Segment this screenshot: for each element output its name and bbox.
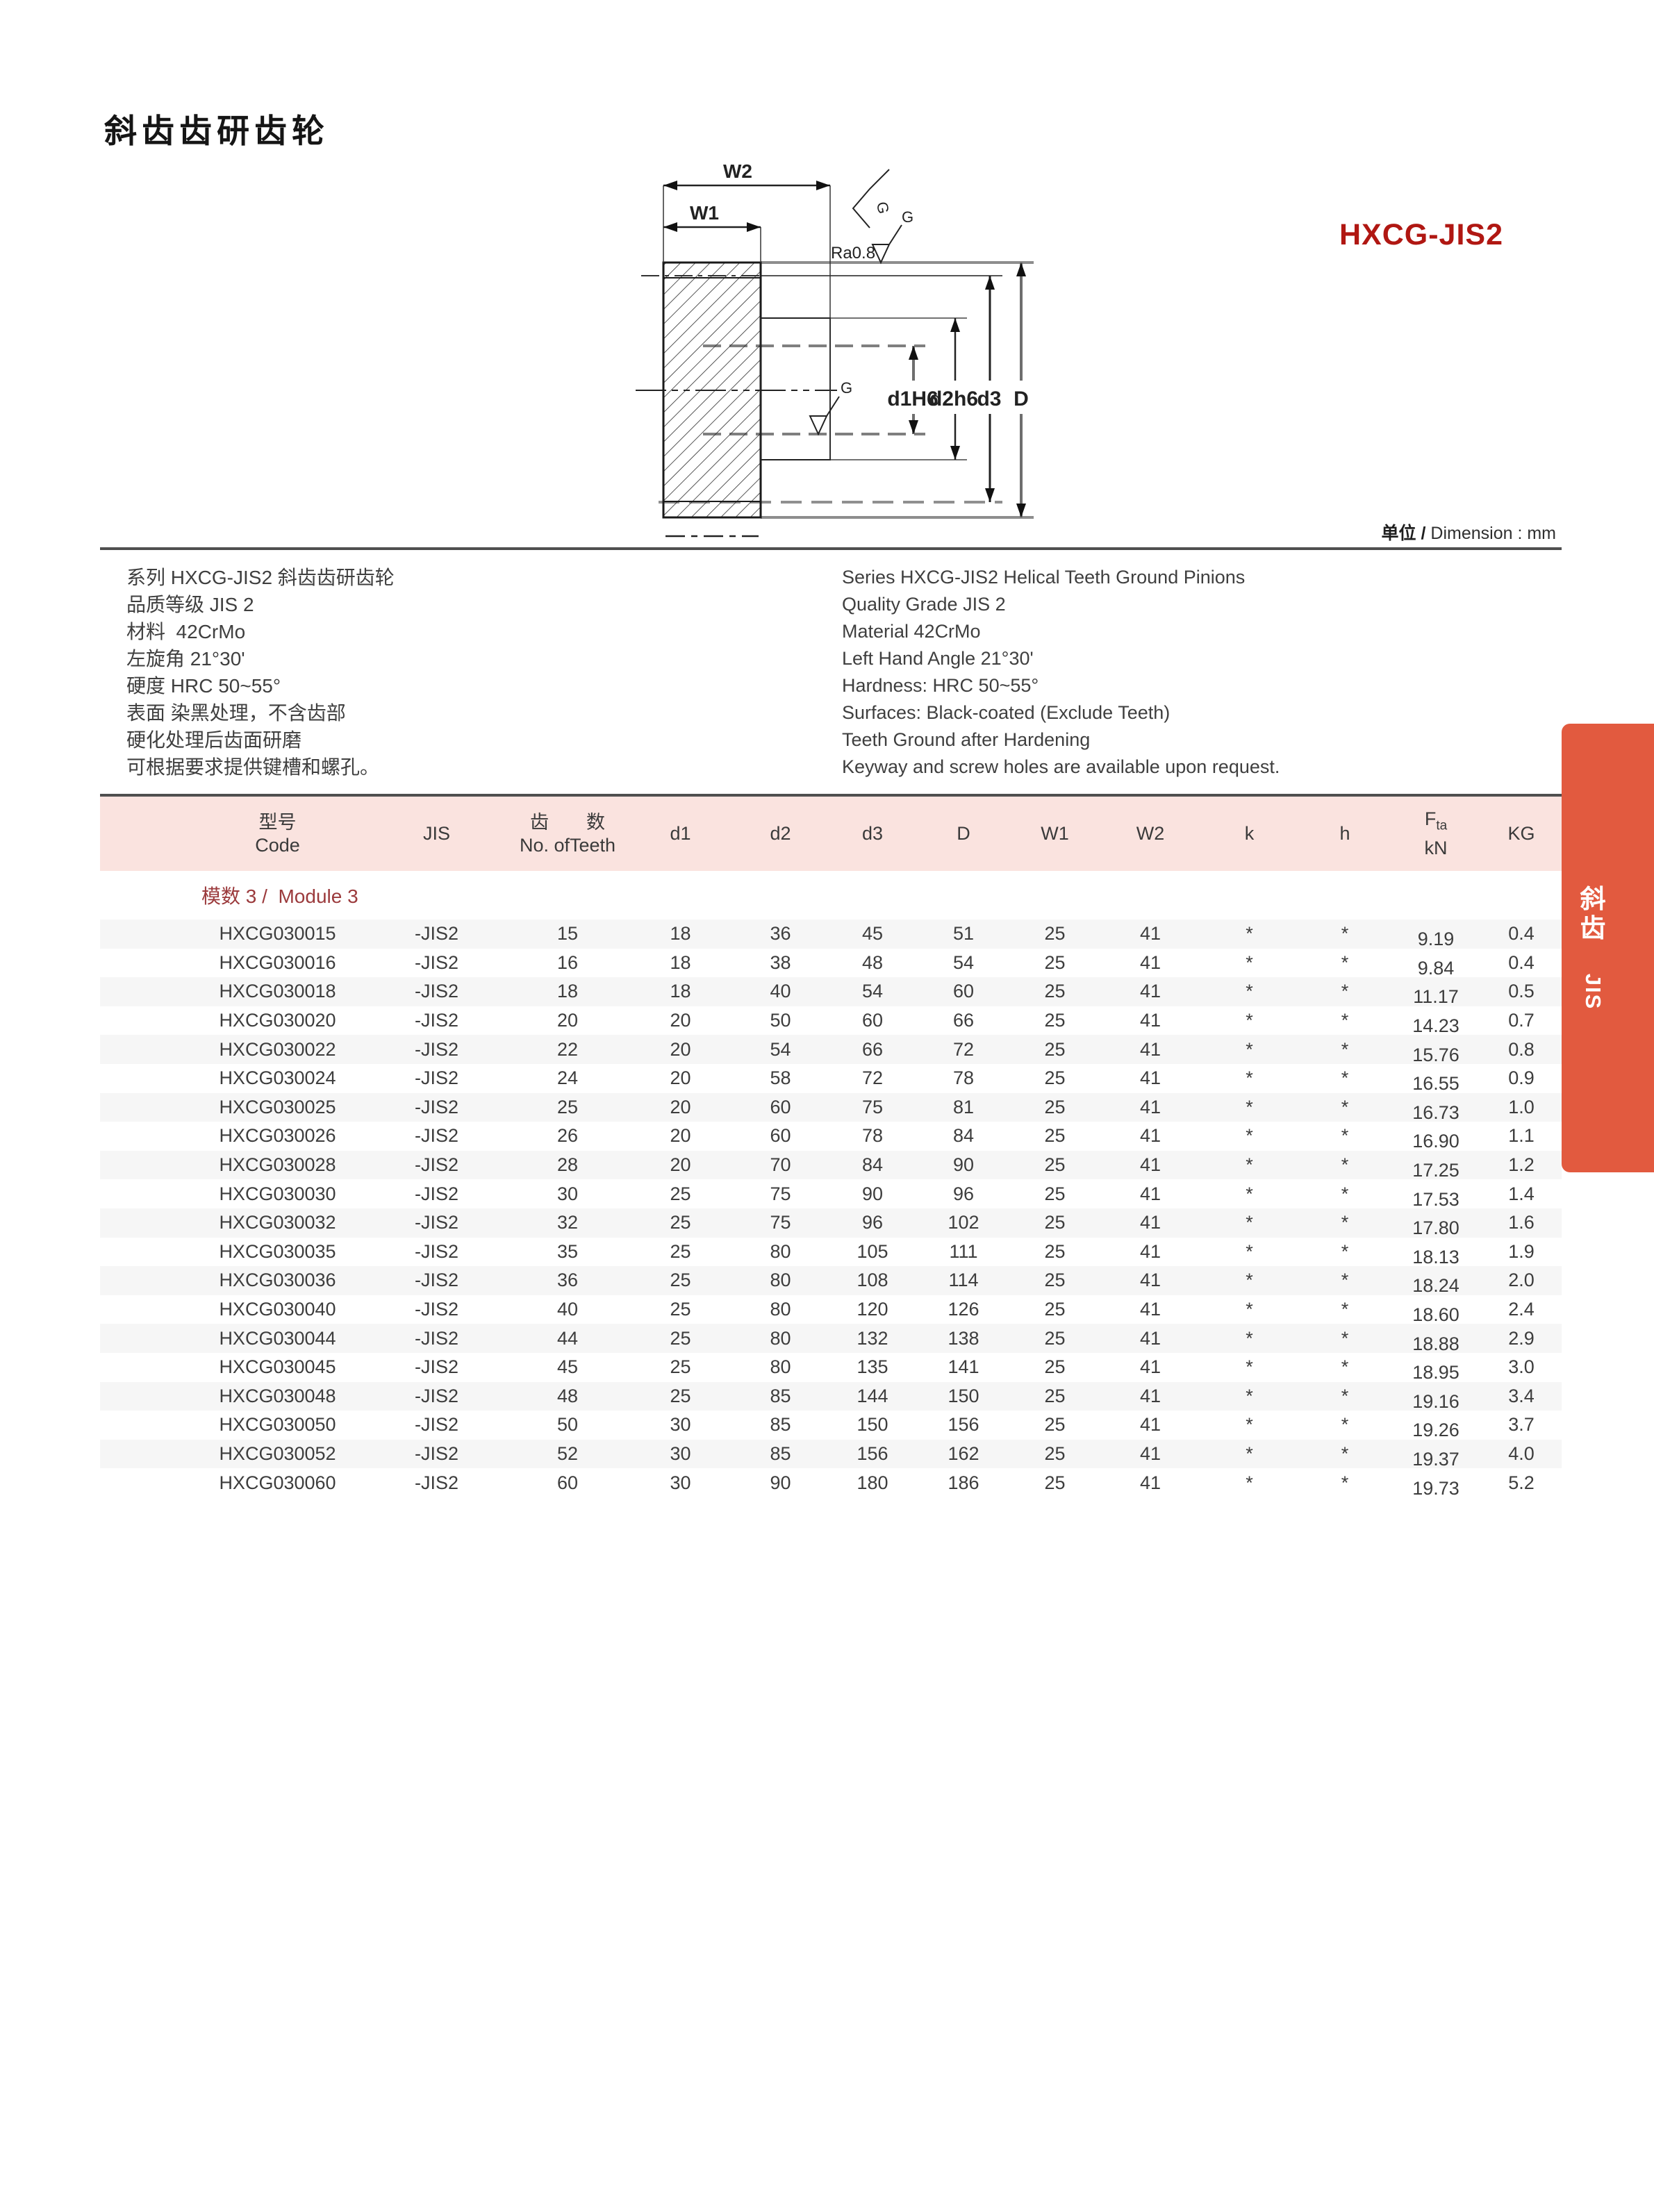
- cell-teeth: 20: [508, 1010, 627, 1031]
- cell-h: *: [1299, 1039, 1391, 1061]
- cell-code: HXCG030045: [100, 1356, 365, 1378]
- cell-w2: 41: [1101, 1299, 1200, 1320]
- cell-w2: 41: [1101, 1386, 1200, 1407]
- cell-d1: 25: [627, 1299, 734, 1320]
- cell-k: *: [1200, 1067, 1299, 1089]
- specs-chinese: 系列 HXCG-JIS2 斜齿齿研齿轮 品质等级 JIS 2 材料 42CrMo…: [126, 564, 395, 781]
- cell-d1: 18: [627, 952, 734, 974]
- cell-w1: 25: [1009, 952, 1101, 974]
- col-header-d3: d3: [827, 822, 918, 845]
- cell-k: *: [1200, 1299, 1299, 1320]
- cell-D: 84: [918, 1125, 1009, 1147]
- cell-h: *: [1299, 1472, 1391, 1494]
- cell-d2: 50: [734, 1010, 827, 1031]
- col-header-d1-label: d1: [627, 822, 734, 845]
- col-header-h-label: h: [1299, 822, 1391, 845]
- cell-teeth: 40: [508, 1299, 627, 1320]
- cell-w1: 25: [1009, 1067, 1101, 1089]
- cell-d1: 25: [627, 1386, 734, 1407]
- cell-code: HXCG030028: [100, 1154, 365, 1176]
- cell-kg: 1.2: [1481, 1154, 1562, 1176]
- cell-fta: 17.80: [1391, 1217, 1481, 1239]
- cell-w1: 25: [1009, 1270, 1101, 1291]
- col-header-kg: KG: [1481, 822, 1562, 845]
- spec-line: Surfaces: Black-coated (Exclude Teeth): [842, 699, 1280, 726]
- table-row: HXCG030044-JIS24425801321382541**18.882.…: [100, 1324, 1562, 1353]
- cell-fta: 16.73: [1391, 1102, 1481, 1124]
- cell-D: 78: [918, 1067, 1009, 1089]
- cell-teeth: 25: [508, 1097, 627, 1118]
- cell-d2: 90: [734, 1472, 827, 1494]
- page-title: 斜齿齿研齿轮: [104, 104, 329, 152]
- spec-line: Left Hand Angle 21°30': [842, 645, 1280, 672]
- cell-fta: 19.37: [1391, 1449, 1481, 1470]
- unit-note-zh: 单位 /: [1382, 524, 1426, 543]
- cell-w2: 41: [1101, 1414, 1200, 1436]
- cell-jis: -JIS2: [365, 1039, 508, 1061]
- cell-h: *: [1299, 1328, 1391, 1349]
- side-tab-char: 齿: [1562, 914, 1624, 943]
- cell-fta: 11.17: [1391, 986, 1481, 1008]
- cell-k: *: [1200, 1328, 1299, 1349]
- cell-d3: 135: [827, 1356, 918, 1378]
- cell-d2: 38: [734, 952, 827, 974]
- cell-d2: 54: [734, 1039, 827, 1061]
- cell-kg: 1.0: [1481, 1097, 1562, 1118]
- arrow: [985, 488, 995, 502]
- cell-jis: -JIS2: [365, 923, 508, 945]
- cell-w2: 41: [1101, 1067, 1200, 1089]
- cell-d2: 85: [734, 1414, 827, 1436]
- cell-w2: 41: [1101, 1356, 1200, 1378]
- cell-d1: 25: [627, 1183, 734, 1205]
- arrow: [950, 318, 960, 332]
- cell-kg: 3.4: [1481, 1386, 1562, 1407]
- spec-line: 可根据要求提供键槽和螺孔。: [126, 754, 395, 781]
- cell-d3: 90: [827, 1183, 918, 1205]
- cell-h: *: [1299, 1010, 1391, 1031]
- cell-code: HXCG030060: [100, 1472, 365, 1494]
- col-header-code-en: Code: [190, 834, 365, 857]
- cell-d2: 80: [734, 1356, 827, 1378]
- arrow: [950, 446, 960, 460]
- col-header-jis: JIS: [365, 822, 508, 845]
- spec-line: 表面 染黑处理，不含齿部: [126, 699, 395, 726]
- cell-code: HXCG030052: [100, 1443, 365, 1465]
- module-group-label: 模数 3 / Module 3: [100, 881, 358, 909]
- cell-D: 54: [918, 952, 1009, 974]
- arrow: [816, 181, 830, 190]
- cell-w1: 25: [1009, 1299, 1101, 1320]
- cell-d3: 180: [827, 1472, 918, 1494]
- cell-kg: 1.9: [1481, 1241, 1562, 1263]
- col-header-w2: W2: [1101, 822, 1200, 845]
- cell-k: *: [1200, 1183, 1299, 1205]
- spec-line: Quality Grade JIS 2: [842, 591, 1280, 618]
- divider-rule: [100, 547, 1562, 550]
- cell-code: HXCG030020: [100, 1010, 365, 1031]
- cell-d1: 20: [627, 1097, 734, 1118]
- table-row: HXCG030022-JIS222205466722541**15.760.8: [100, 1035, 1562, 1064]
- cell-d2: 80: [734, 1270, 827, 1291]
- cell-jis: -JIS2: [365, 1097, 508, 1118]
- cell-kg: 0.8: [1481, 1039, 1562, 1061]
- cell-w1: 25: [1009, 1241, 1101, 1263]
- cell-d1: 30: [627, 1443, 734, 1465]
- cell-kg: 2.4: [1481, 1299, 1562, 1320]
- spec-line: Hardness: HRC 50~55°: [842, 672, 1280, 699]
- cell-d3: 66: [827, 1039, 918, 1061]
- cell-w2: 41: [1101, 1039, 1200, 1061]
- table-row: HXCG030036-JIS23625801081142541**18.242.…: [100, 1266, 1562, 1295]
- cell-teeth: 60: [508, 1472, 627, 1494]
- cell-d3: 120: [827, 1299, 918, 1320]
- cell-d1: 30: [627, 1472, 734, 1494]
- cell-teeth: 28: [508, 1154, 627, 1176]
- col-header-D: D: [918, 822, 1009, 845]
- cell-kg: 0.5: [1481, 981, 1562, 1002]
- cell-D: 81: [918, 1097, 1009, 1118]
- cell-h: *: [1299, 1299, 1391, 1320]
- cell-kg: 0.7: [1481, 1010, 1562, 1031]
- side-tab-char: 斜: [1562, 885, 1624, 914]
- cell-fta: 17.53: [1391, 1189, 1481, 1211]
- cell-kg: 2.9: [1481, 1328, 1562, 1349]
- cell-k: *: [1200, 981, 1299, 1002]
- unit-note-en: Dimension : mm: [1425, 524, 1556, 543]
- cell-code: HXCG030018: [100, 981, 365, 1002]
- cell-h: *: [1299, 1356, 1391, 1378]
- cell-kg: 2.0: [1481, 1270, 1562, 1291]
- cell-fta: 15.76: [1391, 1045, 1481, 1066]
- cell-jis: -JIS2: [365, 1328, 508, 1349]
- cell-teeth: 44: [508, 1328, 627, 1349]
- cell-kg: 3.0: [1481, 1356, 1562, 1378]
- col-header-h: h: [1299, 822, 1391, 845]
- g-mark-label: G: [841, 379, 852, 397]
- cell-w1: 25: [1009, 1097, 1101, 1118]
- hub-outline: [761, 318, 830, 460]
- cell-w1: 25: [1009, 1386, 1101, 1407]
- col-header-code-zh: 型号: [190, 811, 365, 834]
- cell-h: *: [1299, 1183, 1391, 1205]
- cell-d1: 25: [627, 1270, 734, 1291]
- cell-code: HXCG030048: [100, 1386, 365, 1407]
- D-label: D: [1014, 388, 1029, 410]
- spec-line: Material 42CrMo: [842, 618, 1280, 645]
- arrow: [663, 222, 677, 232]
- cell-teeth: 48: [508, 1386, 627, 1407]
- cell-w2: 41: [1101, 1125, 1200, 1147]
- cell-h: *: [1299, 1241, 1391, 1263]
- cell-jis: -JIS2: [365, 1241, 508, 1263]
- table-row: HXCG030060-JIS26030901801862541**19.735.…: [100, 1468, 1562, 1497]
- grinding-mark-tail: [889, 225, 902, 244]
- cell-D: 111: [918, 1241, 1009, 1263]
- side-tab-jis: JIS: [1580, 969, 1605, 1015]
- cell-d1: 25: [627, 1241, 734, 1263]
- cell-k: *: [1200, 1356, 1299, 1378]
- cell-w2: 41: [1101, 1212, 1200, 1233]
- cell-kg: 0.4: [1481, 952, 1562, 974]
- cell-w1: 25: [1009, 1183, 1101, 1205]
- cell-d3: 48: [827, 952, 918, 974]
- col-header-d2: d2: [734, 822, 827, 845]
- cell-D: 138: [918, 1328, 1009, 1349]
- cell-d2: 80: [734, 1241, 827, 1263]
- arrow: [663, 181, 677, 190]
- cell-w2: 41: [1101, 1328, 1200, 1349]
- cell-jis: -JIS2: [365, 1386, 508, 1407]
- cell-D: 114: [918, 1270, 1009, 1291]
- cell-fta: 18.60: [1391, 1304, 1481, 1326]
- cell-fta: 16.90: [1391, 1131, 1481, 1152]
- gear-technical-drawing: W2 W1 d1H6 d2h6 d3 D G: [618, 160, 1056, 549]
- cell-kg: 1.4: [1481, 1183, 1562, 1205]
- cell-d1: 20: [627, 1125, 734, 1147]
- grinding-mark-icon: [810, 416, 827, 434]
- cell-D: 96: [918, 1183, 1009, 1205]
- cell-h: *: [1299, 981, 1391, 1002]
- cell-d3: 84: [827, 1154, 918, 1176]
- cell-d2: 80: [734, 1328, 827, 1349]
- cell-d1: 20: [627, 1039, 734, 1061]
- table-row: HXCG030018-JIS218184054602541**11.170.5: [100, 977, 1562, 1006]
- table-row: HXCG030052-JIS25230851561622541**19.374.…: [100, 1440, 1562, 1469]
- g-mark-label: G: [873, 201, 893, 215]
- cell-teeth: 50: [508, 1414, 627, 1436]
- cell-D: 51: [918, 923, 1009, 945]
- cell-d1: 20: [627, 1067, 734, 1089]
- cell-kg: 3.7: [1481, 1414, 1562, 1436]
- cell-D: 162: [918, 1443, 1009, 1465]
- cell-k: *: [1200, 1386, 1299, 1407]
- cell-fta: 14.23: [1391, 1015, 1481, 1037]
- col-header-w2-label: W2: [1101, 822, 1200, 845]
- specs-english: Series HXCG-JIS2 Helical Teeth Ground Pi…: [842, 564, 1280, 781]
- cell-h: *: [1299, 1212, 1391, 1233]
- cell-w2: 41: [1101, 1010, 1200, 1031]
- cell-w1: 25: [1009, 1414, 1101, 1436]
- spec-line: 品质等级 JIS 2: [126, 591, 395, 618]
- cell-d2: 75: [734, 1183, 827, 1205]
- col-header-teeth-en: No. ofTeeth: [508, 834, 627, 857]
- cell-d3: 75: [827, 1097, 918, 1118]
- cell-h: *: [1299, 1154, 1391, 1176]
- cell-jis: -JIS2: [365, 1299, 508, 1320]
- cell-code: HXCG030026: [100, 1125, 365, 1147]
- cell-d2: 80: [734, 1299, 827, 1320]
- cell-fta: 19.16: [1391, 1391, 1481, 1413]
- cell-h: *: [1299, 923, 1391, 945]
- cell-k: *: [1200, 1414, 1299, 1436]
- col-header-fta: Fta kN: [1391, 808, 1481, 860]
- spec-line: Keyway and screw holes are available upo…: [842, 754, 1280, 781]
- cell-d1: 20: [627, 1154, 734, 1176]
- cell-w2: 41: [1101, 1472, 1200, 1494]
- cell-d1: 25: [627, 1212, 734, 1233]
- cell-code: HXCG030036: [100, 1270, 365, 1291]
- col-header-d3-label: d3: [827, 822, 918, 845]
- cell-d2: 60: [734, 1097, 827, 1118]
- cell-d2: 85: [734, 1443, 827, 1465]
- cell-D: 72: [918, 1039, 1009, 1061]
- cell-h: *: [1299, 1125, 1391, 1147]
- table-body: HXCG030015-JIS215183645512541**9.190.4HX…: [100, 920, 1562, 1497]
- cell-k: *: [1200, 923, 1299, 945]
- cell-jis: -JIS2: [365, 1270, 508, 1291]
- cell-code: HXCG030044: [100, 1328, 365, 1349]
- cell-h: *: [1299, 1443, 1391, 1465]
- cell-w2: 41: [1101, 1241, 1200, 1263]
- cell-k: *: [1200, 1154, 1299, 1176]
- cell-teeth: 16: [508, 952, 627, 974]
- series-code-badge: HXCG-JIS2: [1339, 218, 1503, 252]
- cell-k: *: [1200, 1097, 1299, 1118]
- spec-line: 硬度 HRC 50~55°: [126, 672, 395, 699]
- col-header-code: 型号 Code: [100, 811, 365, 857]
- table-row: HXCG030035-JIS23525801051112541**18.131.…: [100, 1238, 1562, 1267]
- cell-kg: 0.4: [1481, 923, 1562, 945]
- cell-d2: 85: [734, 1386, 827, 1407]
- cell-D: 141: [918, 1356, 1009, 1378]
- col-header-D-label: D: [918, 822, 1009, 845]
- cell-w2: 41: [1101, 923, 1200, 945]
- cell-kg: 0.9: [1481, 1067, 1562, 1089]
- side-tab-chinese: 斜 齿: [1562, 885, 1624, 943]
- cell-fta: 9.84: [1391, 958, 1481, 979]
- cell-d1: 25: [627, 1356, 734, 1378]
- cell-h: *: [1299, 952, 1391, 974]
- col-header-fta-unit: kN: [1391, 837, 1481, 860]
- cell-fta: 17.25: [1391, 1160, 1481, 1181]
- cell-teeth: 22: [508, 1039, 627, 1061]
- arrow: [985, 276, 995, 290]
- cell-teeth: 15: [508, 923, 627, 945]
- cell-w1: 25: [1009, 1472, 1101, 1494]
- side-tab-helical-jis: 斜 齿 JIS: [1562, 724, 1654, 1172]
- cell-teeth: 36: [508, 1270, 627, 1291]
- ra-label: Ra0.8: [831, 244, 875, 263]
- cell-d3: 132: [827, 1328, 918, 1349]
- cell-k: *: [1200, 1125, 1299, 1147]
- col-header-k: k: [1200, 822, 1299, 845]
- table-row: HXCG030028-JIS228207084902541**17.251.2: [100, 1151, 1562, 1180]
- arrow: [747, 222, 761, 232]
- cell-fta: 16.55: [1391, 1073, 1481, 1095]
- cell-jis: -JIS2: [365, 1010, 508, 1031]
- cell-w2: 41: [1101, 981, 1200, 1002]
- cell-k: *: [1200, 1010, 1299, 1031]
- cell-code: HXCG030030: [100, 1183, 365, 1205]
- cell-code: HXCG030024: [100, 1067, 365, 1089]
- spec-line: 系列 HXCG-JIS2 斜齿齿研齿轮: [126, 564, 395, 591]
- cell-w2: 41: [1101, 1270, 1200, 1291]
- cell-code: HXCG030032: [100, 1212, 365, 1233]
- gear-section: [663, 263, 761, 517]
- cell-jis: -JIS2: [365, 1183, 508, 1205]
- cell-teeth: 45: [508, 1356, 627, 1378]
- cell-d2: 36: [734, 923, 827, 945]
- spec-line: 左旋角 21°30': [126, 645, 395, 672]
- table-header-row: 型号 Code JIS 齿 数 No. ofTeeth d1 d2 d3 D W…: [100, 797, 1562, 871]
- cell-w1: 25: [1009, 1039, 1101, 1061]
- cell-fta: 9.19: [1391, 929, 1481, 950]
- cell-d3: 156: [827, 1443, 918, 1465]
- table-row: HXCG030050-JIS25030851501562541**19.263.…: [100, 1411, 1562, 1440]
- cell-jis: -JIS2: [365, 1154, 508, 1176]
- cell-h: *: [1299, 1097, 1391, 1118]
- arrow: [1016, 263, 1026, 276]
- cell-d1: 20: [627, 1010, 734, 1031]
- col-header-teeth-zh: 齿 数: [508, 811, 627, 834]
- cell-jis: -JIS2: [365, 952, 508, 974]
- cell-kg: 1.1: [1481, 1125, 1562, 1147]
- cell-d2: 40: [734, 981, 827, 1002]
- cell-h: *: [1299, 1270, 1391, 1291]
- col-header-kg-label: KG: [1481, 822, 1562, 845]
- cell-teeth: 26: [508, 1125, 627, 1147]
- spec-line: Series HXCG-JIS2 Helical Teeth Ground Pi…: [842, 564, 1280, 591]
- cell-d2: 60: [734, 1125, 827, 1147]
- cell-w1: 25: [1009, 1328, 1101, 1349]
- product-table: 型号 Code JIS 齿 数 No. ofTeeth d1 d2 d3 D W…: [100, 794, 1562, 1497]
- cell-w1: 25: [1009, 1125, 1101, 1147]
- cell-w2: 41: [1101, 1443, 1200, 1465]
- cell-d3: 96: [827, 1212, 918, 1233]
- cell-D: 66: [918, 1010, 1009, 1031]
- table-row: HXCG030026-JIS226206078842541**16.901.1: [100, 1122, 1562, 1151]
- cell-D: 60: [918, 981, 1009, 1002]
- cell-teeth: 52: [508, 1443, 627, 1465]
- col-header-k-label: k: [1200, 822, 1299, 845]
- spec-line: 材料 42CrMo: [126, 618, 395, 645]
- cell-h: *: [1299, 1414, 1391, 1436]
- col-header-jis-label: JIS: [365, 822, 508, 845]
- cell-D: 102: [918, 1212, 1009, 1233]
- cell-w2: 41: [1101, 1097, 1200, 1118]
- cell-code: HXCG030040: [100, 1299, 365, 1320]
- cell-kg: 5.2: [1481, 1472, 1562, 1494]
- cell-d3: 54: [827, 981, 918, 1002]
- table-row: HXCG030024-JIS224205872782541**16.550.9: [100, 1064, 1562, 1093]
- cell-d3: 72: [827, 1067, 918, 1089]
- cell-d3: 150: [827, 1414, 918, 1436]
- table-row: HXCG030016-JIS216183848542541**9.840.4: [100, 949, 1562, 978]
- unit-note: 单位 / Dimension : mm: [938, 519, 1556, 544]
- grinding-mark-tail: [827, 397, 839, 416]
- cell-jis: -JIS2: [365, 1212, 508, 1233]
- cell-d3: 60: [827, 1010, 918, 1031]
- cell-w1: 25: [1009, 1154, 1101, 1176]
- cell-code: HXCG030015: [100, 923, 365, 945]
- cell-d2: 75: [734, 1212, 827, 1233]
- cell-jis: -JIS2: [365, 981, 508, 1002]
- cell-fta: 18.88: [1391, 1333, 1481, 1355]
- cell-d3: 45: [827, 923, 918, 945]
- cell-D: 126: [918, 1299, 1009, 1320]
- col-header-fta-symbol: Fta: [1391, 808, 1481, 837]
- cell-d1: 25: [627, 1328, 734, 1349]
- cell-teeth: 24: [508, 1067, 627, 1089]
- table-row: HXCG030030-JIS230257590962541**17.531.4: [100, 1179, 1562, 1208]
- col-header-d1: d1: [627, 822, 734, 845]
- cell-w1: 25: [1009, 981, 1101, 1002]
- cell-teeth: 18: [508, 981, 627, 1002]
- cell-d1: 30: [627, 1414, 734, 1436]
- cell-D: 186: [918, 1472, 1009, 1494]
- cell-jis: -JIS2: [365, 1125, 508, 1147]
